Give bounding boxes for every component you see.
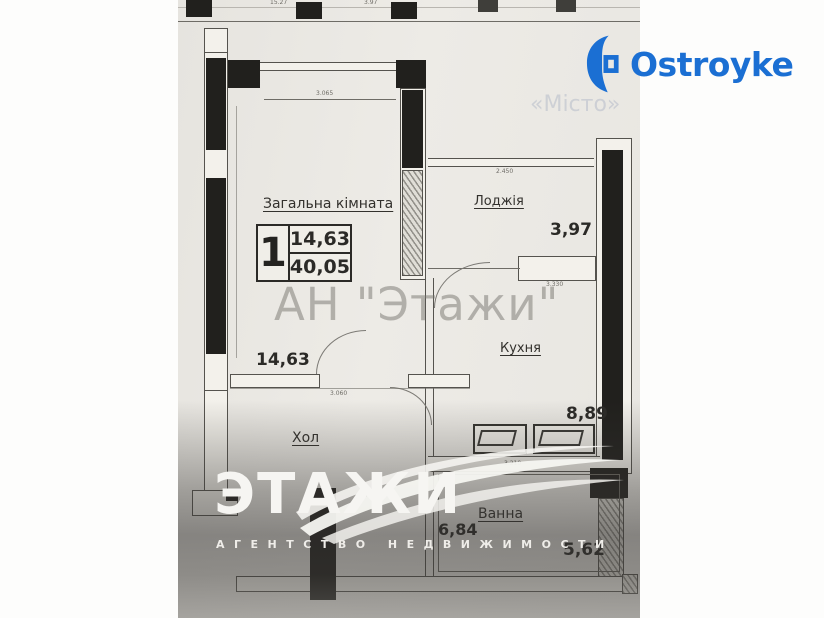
faint-watermark: «Місто» — [530, 92, 620, 117]
room-label-living: Загальна кімната — [263, 196, 393, 212]
wall-black — [396, 60, 426, 88]
wall-black — [402, 90, 423, 168]
wall-segment — [230, 374, 320, 388]
wall-line — [230, 388, 470, 389]
window — [428, 158, 594, 167]
dimension-label: 3.065 — [316, 90, 333, 97]
wall-hatched — [402, 170, 423, 276]
room-area-living: 14,63 — [256, 350, 310, 370]
wall-black — [206, 178, 226, 354]
wall-black — [206, 58, 226, 150]
dimension-label: 2.450 — [496, 168, 513, 175]
room-label-kitchen: Кухня — [500, 341, 541, 356]
room-label-loggia: Лоджія — [474, 194, 524, 209]
wall-black — [228, 60, 260, 88]
dimension-label: 15.27 — [270, 0, 287, 6]
floorplan-photo: 15.27 3.97 3.065 2.450 3.330 — [178, 0, 640, 618]
etagi-subtitle: АГЕНТСТВО НЕДВИЖИМОСТИ — [216, 538, 614, 551]
wall-segment — [408, 374, 470, 388]
wall-black — [391, 2, 417, 19]
stamp-living-area: 14,63 — [290, 226, 350, 254]
stamp-room-count: 1 — [258, 226, 290, 280]
wall-segment — [236, 576, 630, 592]
wall-black — [186, 0, 212, 17]
brand-logo: Ostroyke — [586, 34, 793, 94]
center-watermark: АН "Этажи" — [274, 278, 559, 331]
wall-black — [296, 2, 322, 19]
apartment-stamp: 1 14,63 40,05 — [256, 224, 352, 282]
strip-line — [178, 21, 640, 22]
dimension-line — [236, 106, 237, 358]
wall-hatched — [622, 574, 638, 594]
page: 15.27 3.97 3.065 2.450 3.330 — [0, 0, 824, 618]
room-area-loggia: 3,97 — [550, 220, 592, 240]
room-area-kitchen: 8,89 — [566, 404, 608, 424]
dimension-label: 3.060 — [330, 390, 347, 397]
brand-name: Ostroyke — [630, 45, 793, 84]
etagi-logo-text: ЭТАЖИ — [214, 462, 462, 527]
wall-black — [556, 0, 576, 12]
dimension-line — [264, 99, 396, 100]
door-arc — [316, 330, 366, 374]
dimension-label: 3.97 — [364, 0, 377, 6]
ostroyke-icon — [586, 34, 620, 94]
stamp-total-area: 40,05 — [290, 254, 350, 280]
window — [260, 62, 398, 71]
wall-black — [478, 0, 498, 12]
